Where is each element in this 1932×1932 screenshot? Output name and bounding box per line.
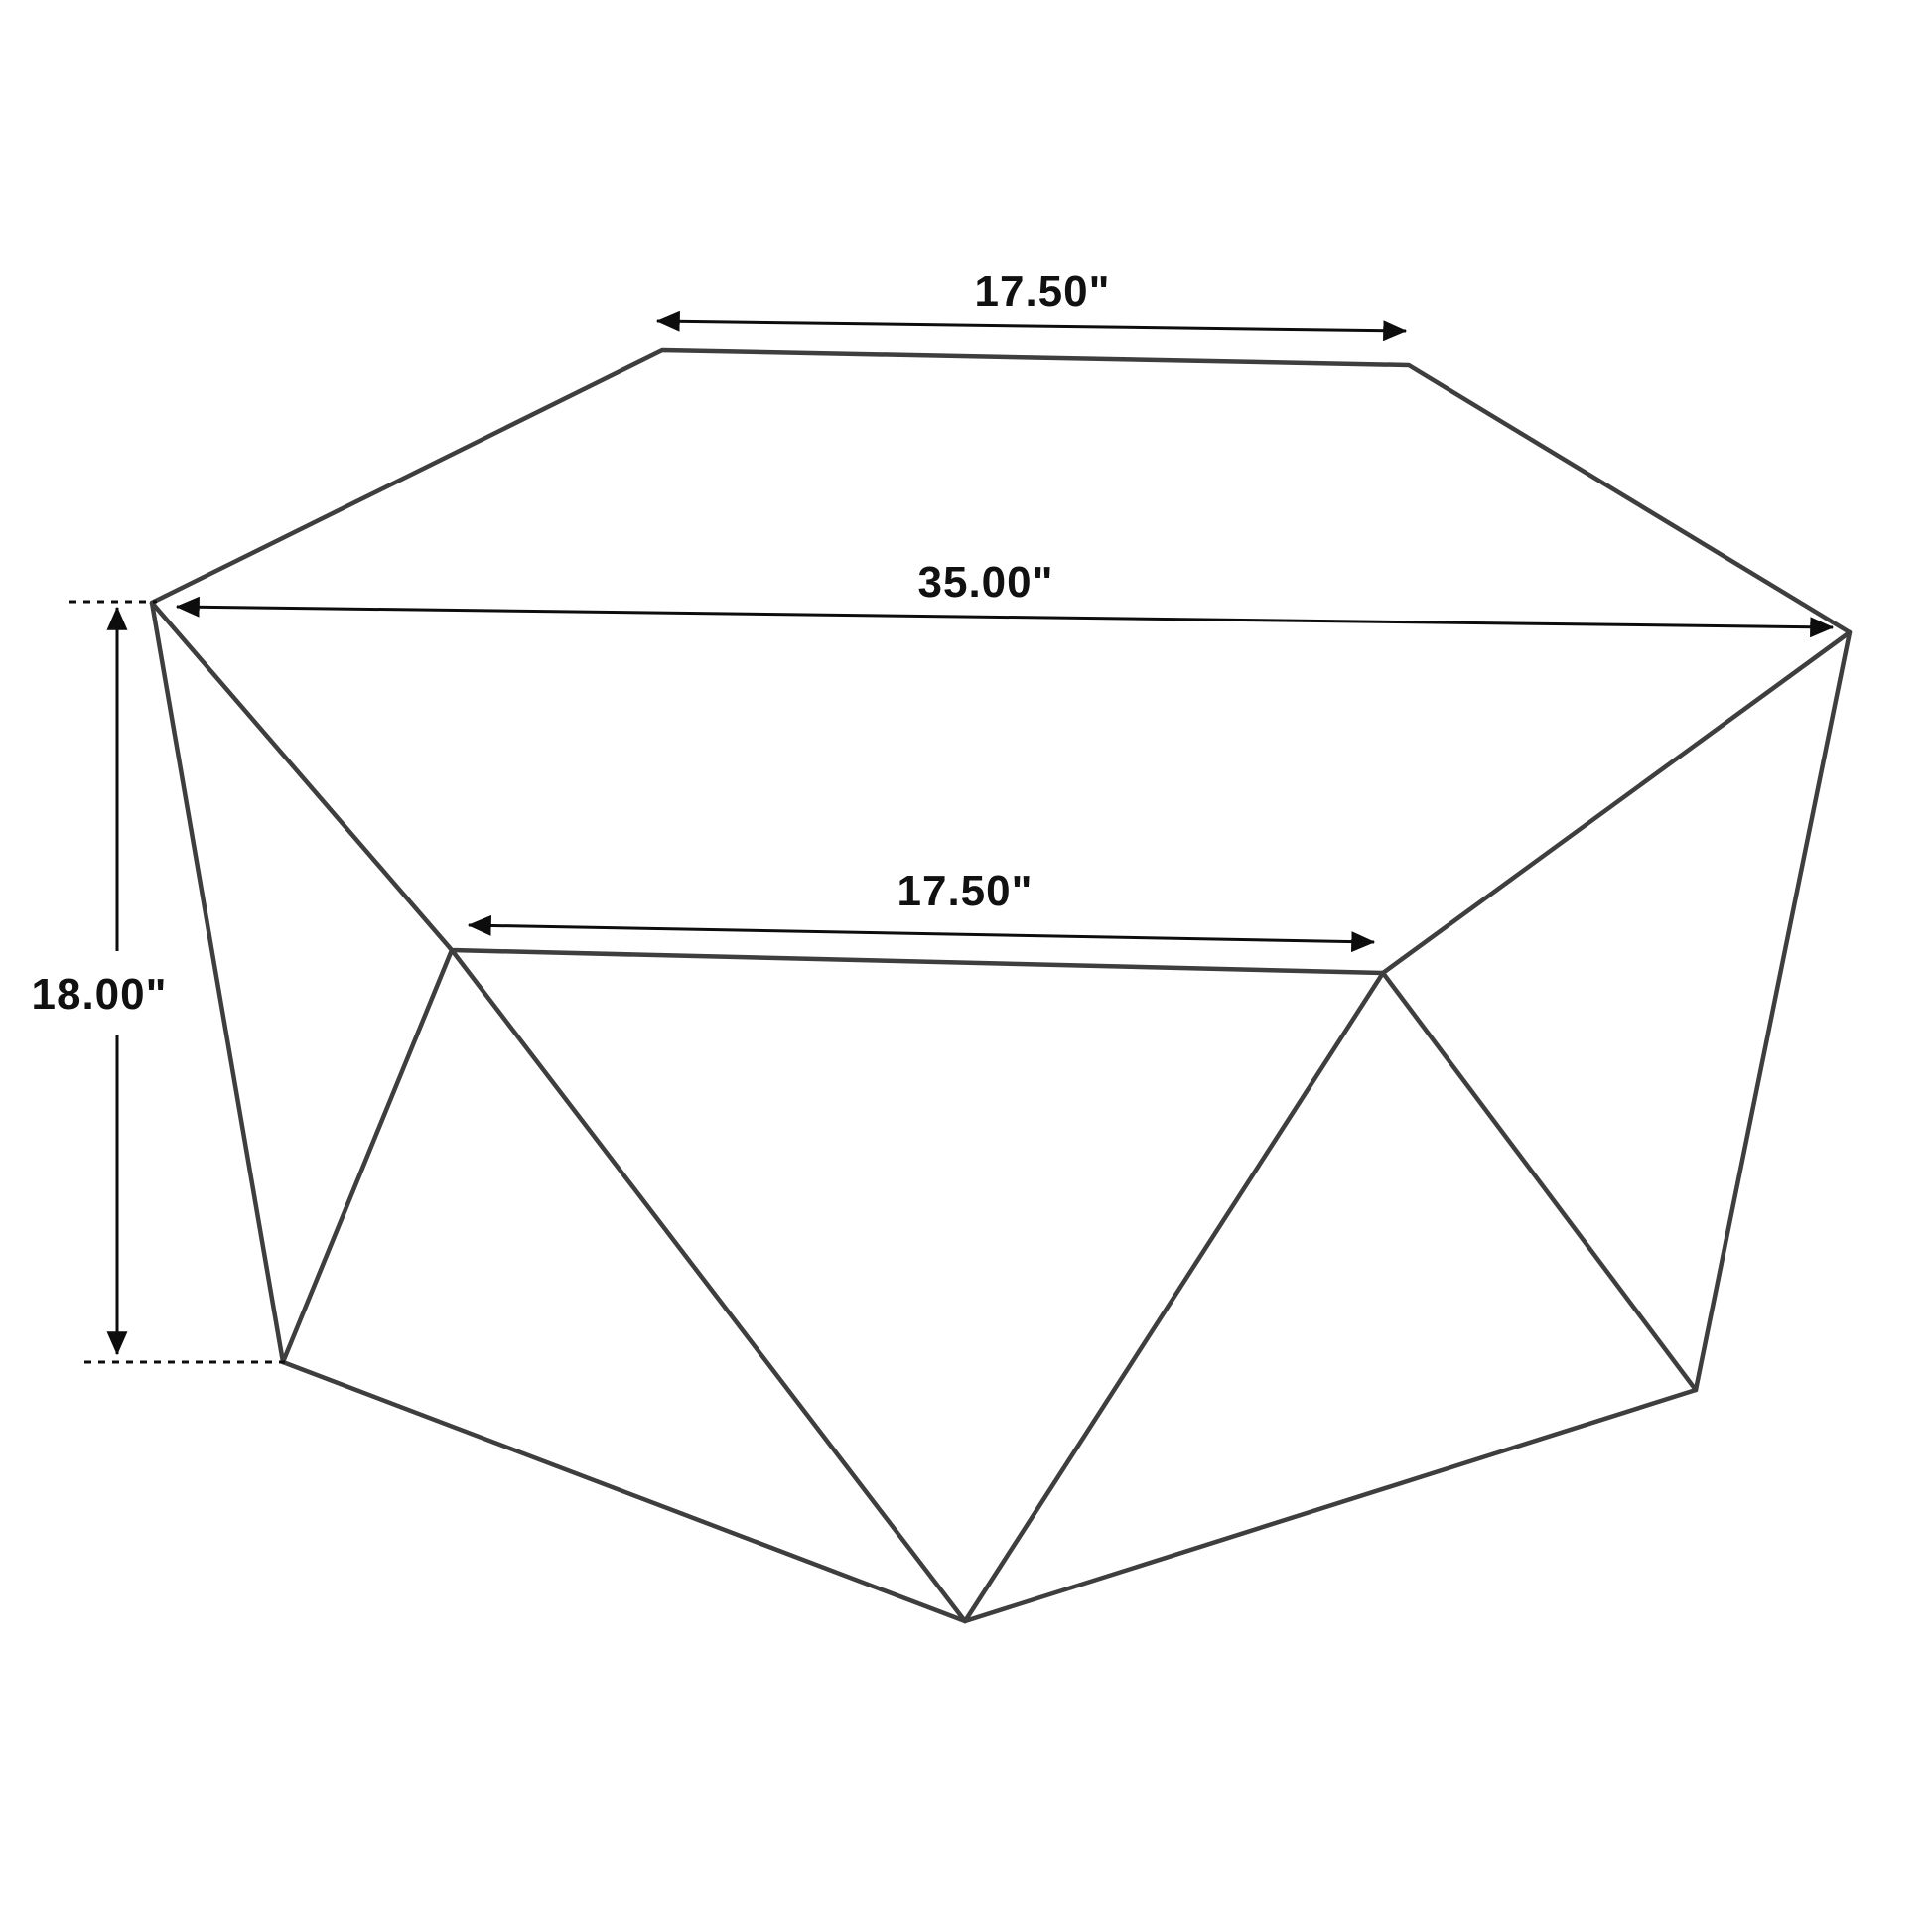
dimension-label-front-width: 17.50" <box>897 867 1034 915</box>
dimension-label-top-width: 17.50" <box>975 267 1111 316</box>
dimension-diagram: 17.50" 35.00" 17.50" 18.00" <box>0 0 1932 1932</box>
edge-bottom-left <box>283 1362 965 1621</box>
edge-left-vertical <box>152 603 283 1362</box>
front-width-dimension-arrow <box>469 925 1374 942</box>
dimension-label-overall-width: 35.00" <box>918 558 1054 607</box>
dimension-annotations: 17.50" 35.00" 17.50" 18.00" <box>32 267 1833 1362</box>
edge-right-facet <box>1383 973 1696 1390</box>
dimension-label-height: 18.00" <box>32 970 168 1019</box>
table-outline <box>152 350 1850 1621</box>
overall-width-dimension-arrow <box>177 607 1833 627</box>
diagram-canvas: 17.50" 35.00" 17.50" 18.00" <box>0 0 1932 1932</box>
edge-bottom-right <box>965 1390 1696 1621</box>
edge-front-left-facet <box>452 950 965 1621</box>
edge-left-facet <box>283 950 452 1362</box>
top-width-dimension-arrow <box>657 321 1406 331</box>
edge-right-vertical <box>1696 632 1850 1390</box>
edge-front-right-facet <box>965 973 1383 1621</box>
